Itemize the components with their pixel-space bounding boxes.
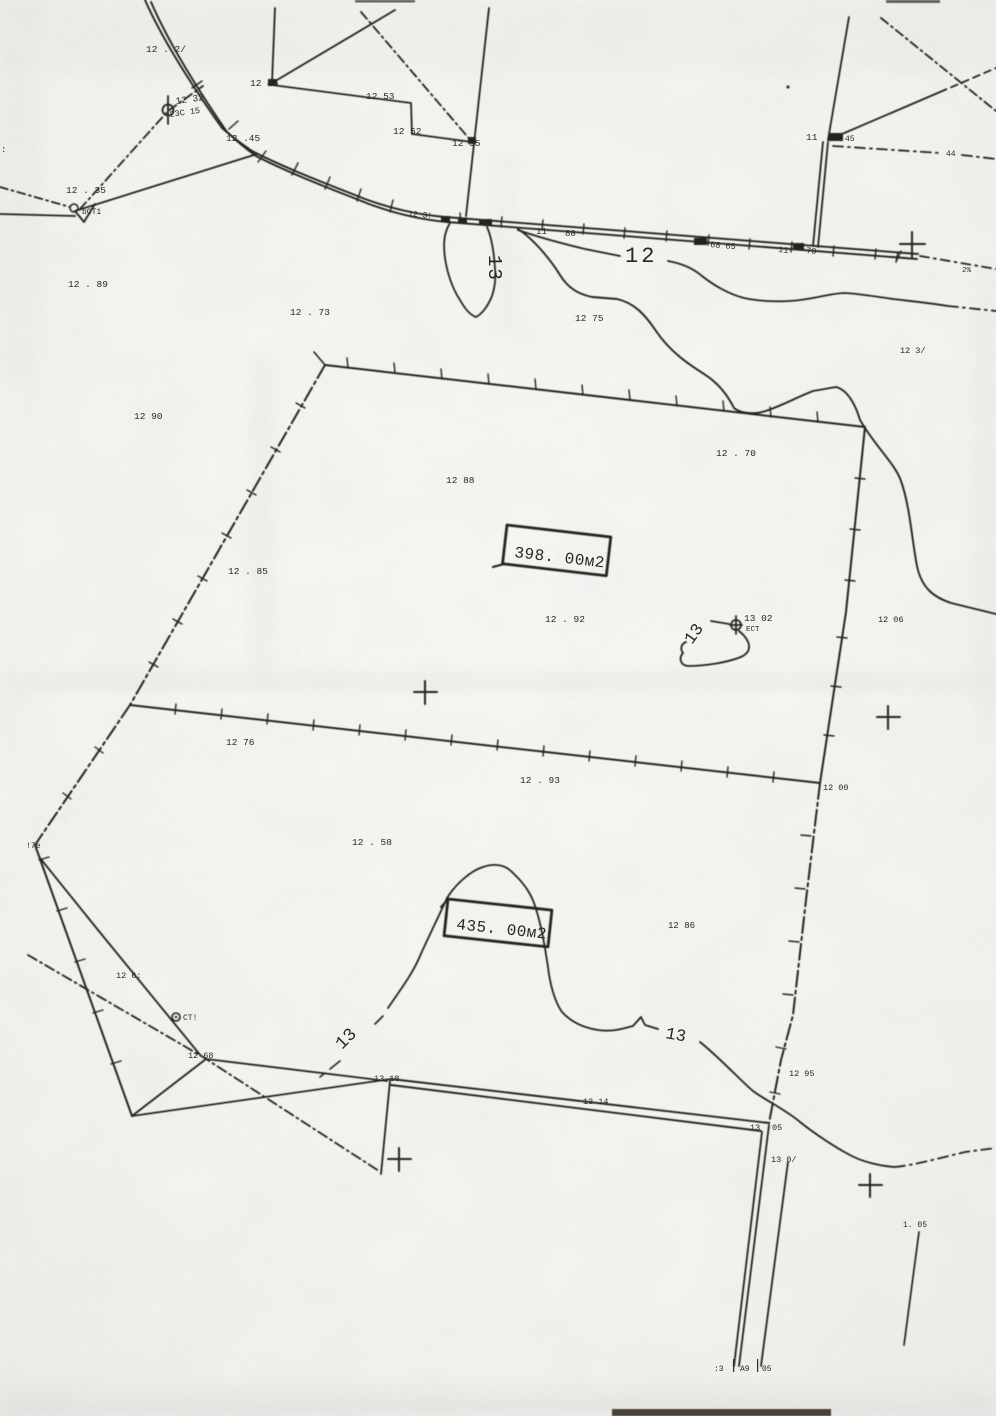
svg-text:CT!: CT! [183, 1014, 197, 1023]
svg-text:70: 70 [806, 246, 817, 257]
svg-text:12 . 70: 12 . 70 [716, 448, 756, 459]
svg-text:11: 11 [806, 132, 818, 143]
svg-text:05: 05 [762, 1365, 772, 1374]
svg-text:!7e: !7e [26, 842, 41, 851]
svg-text:13 0/: 13 0/ [771, 1155, 797, 1165]
svg-text:12 . 92: 12 . 92 [545, 614, 585, 625]
svg-text:2%: 2% [962, 267, 972, 275]
svg-text::3: :3 [714, 1365, 724, 1374]
svg-text:12: 12 [625, 244, 657, 269]
svg-text:12 53: 12 53 [366, 91, 395, 102]
svg-text:12 . 58: 12 . 58 [352, 837, 392, 848]
svg-text:12 52: 12 52 [393, 126, 422, 137]
svg-text:12 55: 12 55 [452, 138, 481, 149]
svg-text:11: 11 [536, 227, 547, 237]
svg-text:13: 13 [750, 1123, 760, 1133]
svg-text:12 46: 12 46 [250, 78, 279, 89]
svg-text:13 14: 13 14 [583, 1097, 609, 1107]
svg-text:12 95: 12 95 [789, 1069, 815, 1079]
svg-text:11: 11 [778, 245, 789, 256]
svg-text:12 . 35: 12 . 35 [66, 185, 106, 196]
svg-text:12 90: 12 90 [134, 411, 163, 422]
svg-text::: : [1, 145, 6, 155]
svg-text:12 . 73: 12 . 73 [290, 307, 330, 318]
svg-text:A9: A9 [740, 1365, 750, 1374]
svg-text:12 75: 12 75 [575, 313, 604, 324]
svg-text:44: 44 [946, 150, 956, 159]
svg-text:45: 45 [845, 135, 855, 144]
svg-text:12 3/: 12 3/ [900, 346, 926, 356]
svg-text:12 . 85: 12 . 85 [228, 566, 268, 577]
svg-text:88: 88 [565, 229, 576, 239]
svg-text:13 02: 13 02 [744, 613, 773, 624]
svg-text:ECT: ECT [746, 626, 760, 634]
svg-text:12 06: 12 06 [878, 615, 904, 625]
svg-text:12 88: 12 88 [446, 475, 475, 486]
svg-text:13 18: 13 18 [374, 1074, 400, 1084]
svg-text:1. 05: 1. 05 [903, 1221, 927, 1230]
svg-text:12 .45: 12 .45 [226, 133, 261, 144]
svg-text:12 68: 12 68 [188, 1051, 214, 1061]
svg-text:bCT1: bCT1 [82, 208, 101, 217]
svg-text:13: 13 [483, 255, 505, 282]
svg-text:12 00: 12 00 [823, 783, 849, 793]
svg-text:12 . 2/: 12 . 2/ [146, 44, 186, 55]
svg-text:12 6:: 12 6: [116, 971, 142, 981]
svg-text:12 . 89: 12 . 89 [68, 279, 108, 290]
svg-text:05: 05 [772, 1123, 782, 1133]
svg-text:13: 13 [664, 1025, 687, 1047]
svg-text:12 86: 12 86 [668, 921, 695, 931]
svg-text:12 76: 12 76 [226, 737, 255, 748]
svg-text:12 . 93: 12 . 93 [520, 775, 560, 786]
